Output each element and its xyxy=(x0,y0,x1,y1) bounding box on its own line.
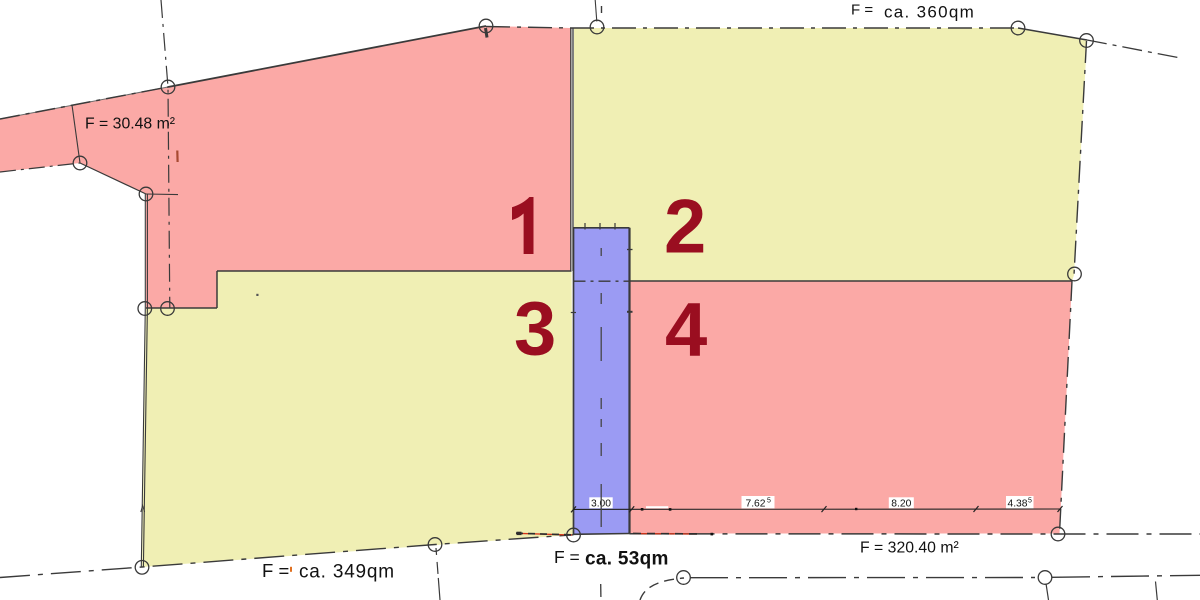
svg-text:F =: F = xyxy=(554,547,580,567)
svg-text:2: 2 xyxy=(664,185,706,270)
svg-text:5: 5 xyxy=(1028,498,1032,505)
svg-text:ca. 360qm: ca. 360qm xyxy=(884,3,975,22)
svg-text:F = 320.40 m²: F = 320.40 m² xyxy=(860,540,959,557)
svg-text:F =: F = xyxy=(851,2,873,19)
svg-text:4: 4 xyxy=(665,288,707,373)
svg-text:3: 3 xyxy=(514,287,556,372)
svg-text:5: 5 xyxy=(767,498,771,505)
svg-text:ca. 53qm: ca. 53qm xyxy=(585,549,669,570)
svg-text:7.62: 7.62 xyxy=(745,499,765,510)
svg-text:F =: F = xyxy=(262,560,289,581)
svg-text:ca. 349qm: ca. 349qm xyxy=(299,562,395,583)
svg-text:F = 30.48 m²: F = 30.48 m² xyxy=(85,116,175,133)
svg-text:8.20: 8.20 xyxy=(891,499,911,510)
svg-text:4.38: 4.38 xyxy=(1007,499,1027,510)
